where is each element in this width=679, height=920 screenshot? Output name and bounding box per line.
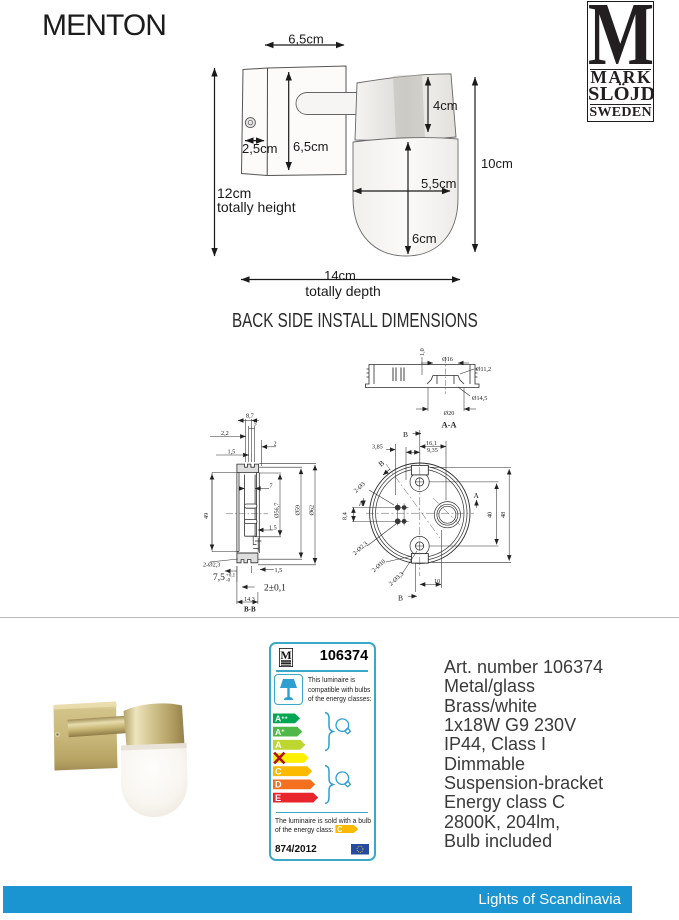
svg-text:48: 48: [500, 512, 507, 518]
svg-text:Ø62: Ø62: [309, 505, 316, 516]
svg-text:B: B: [398, 594, 403, 603]
svg-text:8,7: 8,7: [246, 413, 254, 420]
svg-text:Ø20: Ø20: [444, 410, 455, 417]
svg-text:6,5cm: 6,5cm: [288, 32, 323, 47]
svg-text:Ø59: Ø59: [295, 505, 302, 516]
svg-text:C: C: [337, 825, 343, 833]
svg-text:B-B: B-B: [244, 606, 256, 614]
svg-text:E: E: [275, 793, 281, 803]
svg-text:4cm: 4cm: [433, 98, 458, 113]
svg-text:D: D: [275, 780, 282, 790]
svg-text:10cm: 10cm: [481, 156, 513, 171]
svg-text:2-Ø10: 2-Ø10: [371, 558, 387, 574]
svg-text:9,35: 9,35: [427, 447, 438, 454]
svg-text:8,4: 8,4: [342, 512, 349, 520]
svg-text:1,5: 1,5: [269, 525, 277, 532]
svg-text:-0: -0: [226, 579, 231, 584]
svg-text:14,3: 14,3: [244, 596, 255, 603]
svg-text:C: C: [275, 767, 282, 777]
svg-text:2,2: 2,2: [221, 430, 229, 437]
svg-text:2±0,1: 2±0,1: [264, 584, 286, 594]
svg-text:A: A: [474, 491, 480, 500]
svg-text:40: 40: [487, 512, 494, 518]
svg-text:16,1: 16,1: [426, 440, 437, 447]
svg-text:6,5cm: 6,5cm: [293, 139, 328, 154]
svg-text:B: B: [403, 430, 408, 439]
svg-text:Ø11,2: Ø11,2: [476, 366, 491, 373]
svg-text:5,5cm: 5,5cm: [421, 176, 456, 191]
svg-text:1,5: 1,5: [275, 567, 283, 574]
svg-text:A-A: A-A: [441, 420, 457, 430]
svg-text:B: B: [377, 458, 387, 468]
svg-text:A: A: [275, 740, 282, 750]
svg-text:A: A: [359, 499, 365, 508]
svg-text:2-Ø3: 2-Ø3: [353, 481, 367, 495]
svg-text:3,85: 3,85: [372, 444, 383, 451]
svg-text:2,5cm: 2,5cm: [242, 141, 277, 156]
svg-text:14cm: 14cm: [324, 268, 356, 283]
svg-text:6cm: 6cm: [412, 231, 437, 246]
svg-text:7,5: 7,5: [213, 573, 225, 583]
svg-text:2-Ø3,3: 2-Ø3,3: [388, 571, 406, 588]
svg-text:2: 2: [274, 441, 277, 448]
svg-text:1,5: 1,5: [228, 448, 236, 455]
svg-text:5: 5: [254, 421, 257, 428]
svg-text:2-Ø2,3: 2-Ø2,3: [203, 562, 220, 569]
svg-text:totally height: totally height: [217, 199, 296, 215]
svg-text:2-Ø2,3: 2-Ø2,3: [352, 540, 370, 557]
svg-text:totally depth: totally depth: [305, 283, 381, 299]
svg-text:Ø56,7: Ø56,7: [274, 503, 281, 518]
svg-text:1,0: 1,0: [419, 348, 426, 356]
svg-text:49: 49: [203, 513, 210, 519]
svg-text:7: 7: [270, 483, 273, 490]
svg-text:Ø16: Ø16: [442, 356, 453, 363]
svg-text:Ø14,5: Ø14,5: [472, 395, 487, 402]
svg-text:M: M: [280, 648, 291, 662]
svg-text:10: 10: [434, 578, 440, 585]
